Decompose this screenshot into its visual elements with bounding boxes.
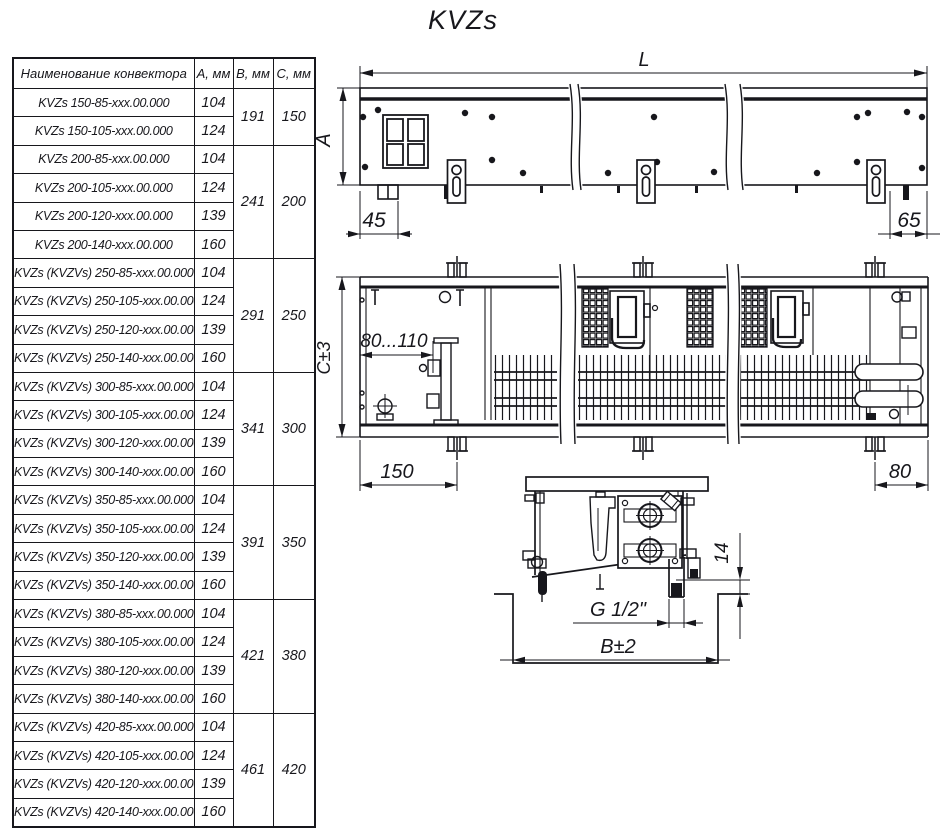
dim-a: 160	[194, 230, 233, 258]
dim-65-label: 65	[897, 209, 921, 232]
convector-name: KVZs (KVZVs) 300-140-xxx.00.000	[13, 458, 194, 486]
mounting-bracket	[867, 160, 885, 203]
dim-c	[336, 277, 362, 437]
connection-plate	[618, 491, 682, 568]
mounting-bracket	[448, 160, 466, 203]
dim-a: 104	[194, 713, 233, 741]
convector-name: KVZs (KVZVs) 350-105-xxx.00.000	[13, 514, 194, 542]
dim-c: 300	[273, 372, 315, 486]
table-row: KVZs (KVZVs) 350-85-xxx.00.000 104 391 3…	[13, 486, 315, 514]
dim-a: 139	[194, 429, 233, 457]
dim-b: 241	[233, 145, 273, 259]
table-row: KVZs (KVZVs) 380-85-xxx.00.000 104 421 3…	[13, 600, 315, 628]
dim-a: 104	[194, 600, 233, 628]
fan-grille	[582, 289, 608, 347]
drain-stub	[596, 574, 604, 589]
dim-c: 200	[273, 145, 315, 259]
table-row: KVZs 150-85-xxx.00.000 104 191 150	[13, 89, 315, 117]
heat-exchanger-fins	[494, 355, 870, 420]
dim-a: 160	[194, 571, 233, 599]
dim-l-label: L	[638, 49, 649, 71]
table-row: KVZs 200-85-xxx.00.000 104 241 200	[13, 145, 315, 173]
convector-name: KVZs (KVZVs) 250-85-xxx.00.000	[13, 259, 194, 287]
dim-b: 391	[233, 486, 273, 600]
table-row: KVZs (KVZVs) 420-85-xxx.00.000 104 461 4…	[13, 713, 315, 741]
dim-a: 104	[194, 145, 233, 173]
dim-c: 420	[273, 713, 315, 827]
dim-a: 124	[194, 514, 233, 542]
fan-motor	[771, 291, 809, 347]
convector-name: KVZs (KVZVs) 350-120-xxx.00.000	[13, 543, 194, 571]
convector-name: KVZs 200-85-xxx.00.000	[13, 145, 194, 173]
dim-a: 104	[194, 486, 233, 514]
convector-name: KVZs (KVZVs) 300-85-xxx.00.000	[13, 372, 194, 400]
dim-a: 124	[194, 741, 233, 769]
dim-b-label: B±2	[600, 636, 635, 658]
dim-b: 421	[233, 600, 273, 714]
dim-c: 250	[273, 259, 315, 373]
convector-name: KVZs (KVZVs) 420-120-xxx.00.000	[13, 770, 194, 798]
dim-b: 341	[233, 372, 273, 486]
dim-a: 124	[194, 287, 233, 315]
dim-c: 380	[273, 600, 315, 714]
dim-a: 139	[194, 656, 233, 684]
front-view-drawing: L А 45 65	[310, 40, 950, 245]
terminal-box	[383, 115, 428, 168]
dim-a: 160	[194, 344, 233, 372]
dim-a: 104	[194, 259, 233, 287]
dim-80-label: 80	[889, 461, 911, 483]
dim-b: 461	[233, 713, 273, 827]
dim-45-label: 45	[362, 209, 386, 232]
dim-a: 104	[194, 89, 233, 117]
dim-a: 139	[194, 202, 233, 230]
dim-a: 104	[194, 372, 233, 400]
dim-14-label: 14	[712, 542, 733, 563]
table-row: KVZs (KVZVs) 300-85-xxx.00.000 104 341 3…	[13, 372, 315, 400]
catalog-page: KVZs Наименование конвектора А, мм В, мм…	[0, 0, 950, 831]
dim-150-label: 150	[380, 461, 413, 483]
dim-a	[337, 88, 362, 185]
col-header-b: В, мм	[233, 58, 273, 89]
col-header-a: А, мм	[194, 58, 233, 89]
dim-c-label: С±3	[314, 342, 334, 375]
mounting-brackets	[448, 160, 886, 203]
convector-name: KVZs (KVZVs) 250-105-xxx.00.000	[13, 287, 194, 315]
convector-name: KVZs (KVZVs) 380-140-xxx.00.000	[13, 685, 194, 713]
dim-a: 139	[194, 543, 233, 571]
convector-name: KVZs (KVZVs) 420-140-xxx.00.000	[13, 798, 194, 827]
convector-name: KVZs (KVZVs) 380-120-xxx.00.000	[13, 656, 194, 684]
table-row: KVZs (KVZVs) 250-85-xxx.00.000 104 291 2…	[13, 259, 315, 287]
dim-a: 160	[194, 458, 233, 486]
dim-a: 160	[194, 685, 233, 713]
page-title: KVZs	[383, 5, 543, 39]
dim-a: 124	[194, 117, 233, 145]
dim-a-label: А	[313, 133, 335, 147]
dim-a: 160	[194, 798, 233, 827]
convector-name: KVZs 200-105-xxx.00.000	[13, 174, 194, 202]
convector-name: KVZs (KVZVs) 250-120-xxx.00.000	[13, 316, 194, 344]
drain-foot	[378, 185, 398, 199]
convector-name: KVZs (KVZVs) 250-140-xxx.00.000	[13, 344, 194, 372]
convector-name: KVZs (KVZVs) 350-85-xxx.00.000	[13, 486, 194, 514]
bottom-ticks	[444, 185, 909, 200]
dim-a: 124	[194, 401, 233, 429]
convector-name: KVZs 200-120-xxx.00.000	[13, 202, 194, 230]
spec-table: Наименование конвектора А, мм В, мм С, м…	[12, 57, 316, 828]
section-view-drawing: G 1/2" B±2 14	[478, 463, 800, 678]
fan-motor	[610, 291, 650, 348]
dim-b: 291	[233, 259, 273, 373]
convector-name: KVZs 200-140-xxx.00.000	[13, 230, 194, 258]
col-header-name: Наименование конвектора	[13, 58, 194, 89]
dim-a: 139	[194, 316, 233, 344]
dim-a: 139	[194, 770, 233, 798]
convector-name: KVZs 150-85-xxx.00.000	[13, 89, 194, 117]
convector-name: KVZs (KVZVs) 420-105-xxx.00.000	[13, 741, 194, 769]
dim-80-110-label: 80...110	[360, 331, 428, 352]
table-header-row: Наименование конвектора А, мм В, мм С, м…	[13, 58, 315, 89]
inlet-assembly	[360, 290, 464, 425]
dim-g-label: G 1/2"	[590, 599, 647, 621]
fan-grille	[741, 289, 767, 347]
dim-a: 124	[194, 174, 233, 202]
convector-name: KVZs (KVZVs) 380-105-xxx.00.000	[13, 628, 194, 656]
dim-b: 191	[233, 89, 273, 146]
fan-grille	[687, 289, 713, 347]
fan-unit	[582, 289, 713, 348]
mounting-bracket	[637, 160, 655, 203]
col-header-c: С, мм	[273, 58, 315, 89]
top-cap	[526, 477, 708, 491]
convector-name: KVZs (KVZVs) 380-85-xxx.00.000	[13, 600, 194, 628]
dim-c: 150	[273, 89, 315, 146]
convector-name: KVZs (KVZVs) 300-105-xxx.00.000	[13, 401, 194, 429]
convector-name: KVZs (KVZVs) 350-140-xxx.00.000	[13, 571, 194, 599]
fan-unit	[741, 289, 809, 347]
dim-c: 350	[273, 486, 315, 600]
dim-a: 124	[194, 628, 233, 656]
convector-name: KVZs 150-105-xxx.00.000	[13, 117, 194, 145]
convector-name: KVZs (KVZVs) 300-120-xxx.00.000	[13, 429, 194, 457]
convector-name: KVZs (KVZVs) 420-85-xxx.00.000	[13, 713, 194, 741]
